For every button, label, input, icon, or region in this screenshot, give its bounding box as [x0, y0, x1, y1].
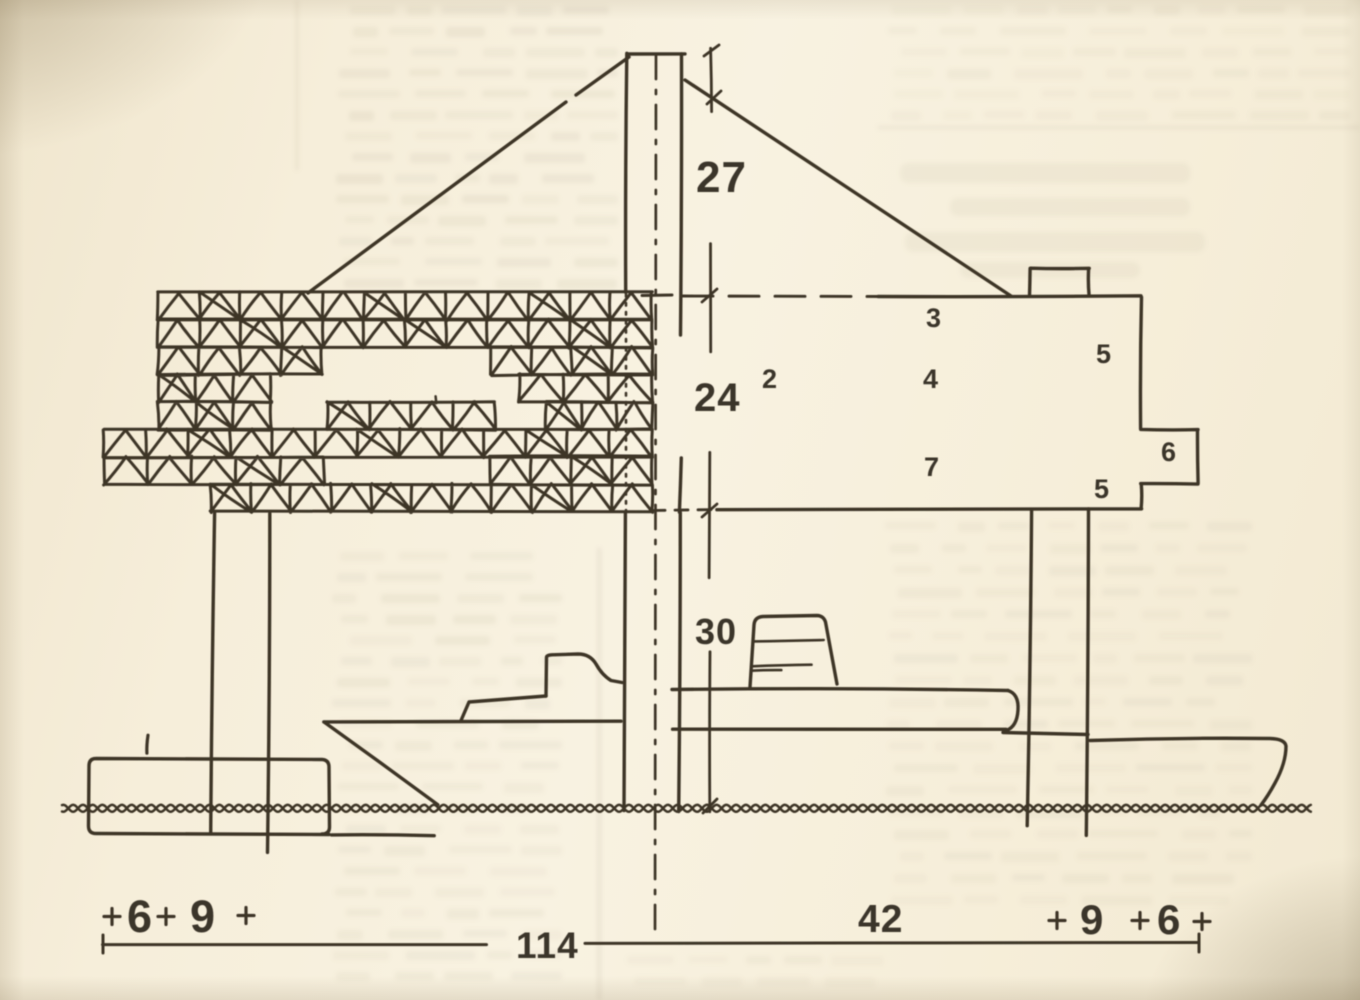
svg-text:6: 6 [1157, 896, 1181, 943]
svg-text:2: 2 [762, 364, 777, 394]
svg-text:3: 3 [926, 303, 941, 333]
svg-text:9: 9 [190, 891, 216, 942]
svg-text:4: 4 [923, 364, 938, 394]
svg-text:114: 114 [516, 925, 579, 966]
svg-text:6: 6 [127, 891, 153, 942]
svg-text:7: 7 [924, 452, 939, 482]
svg-text:30: 30 [695, 611, 737, 652]
svg-text:6: 6 [1161, 437, 1176, 467]
svg-text:27: 27 [696, 153, 747, 202]
svg-text:5: 5 [1096, 339, 1111, 369]
svg-text:5: 5 [1094, 474, 1109, 504]
svg-text:42: 42 [858, 898, 903, 941]
svg-text:9: 9 [1080, 896, 1104, 943]
svg-text:24: 24 [694, 376, 741, 420]
